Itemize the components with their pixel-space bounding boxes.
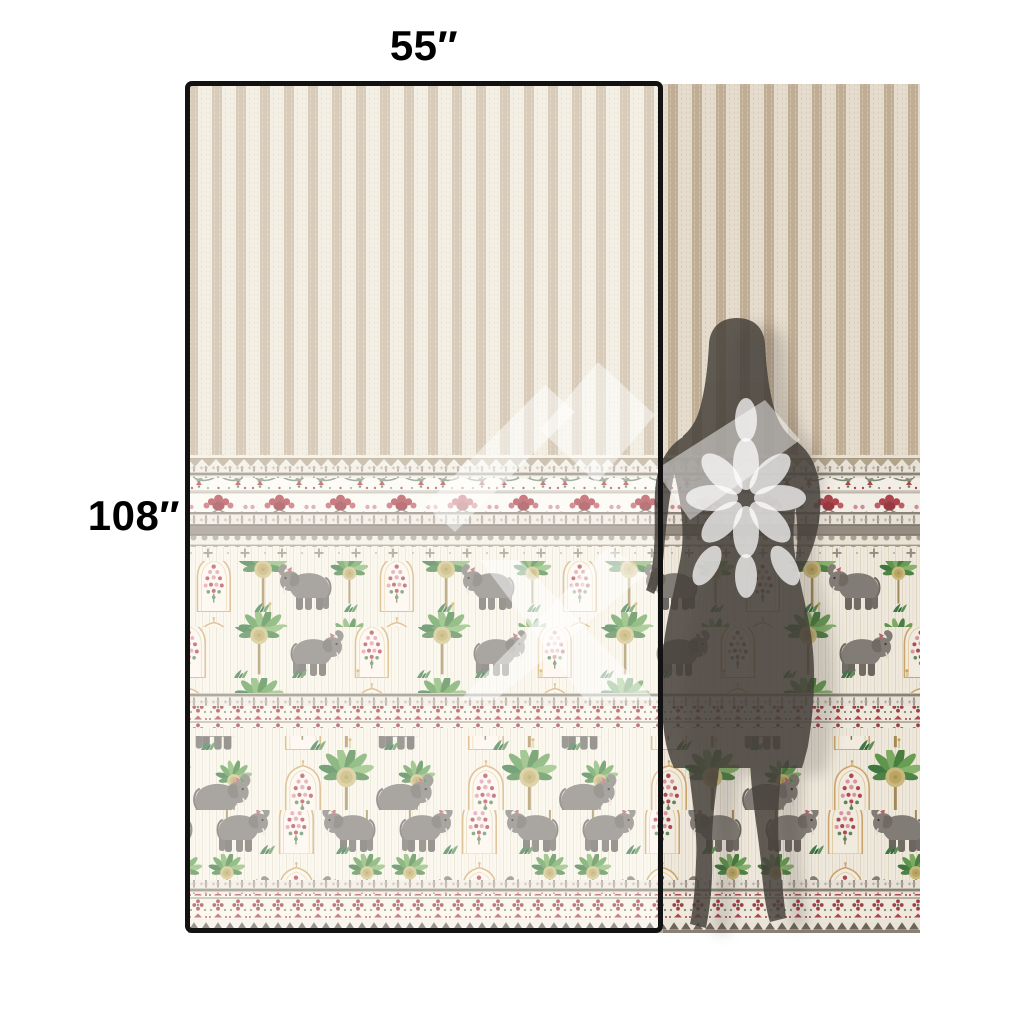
mockup-canvas: 55″ 108″ [0,0,1024,1024]
height-label: 108″ [58,492,180,540]
width-label: 55″ [185,22,663,70]
size-frame [185,81,663,933]
